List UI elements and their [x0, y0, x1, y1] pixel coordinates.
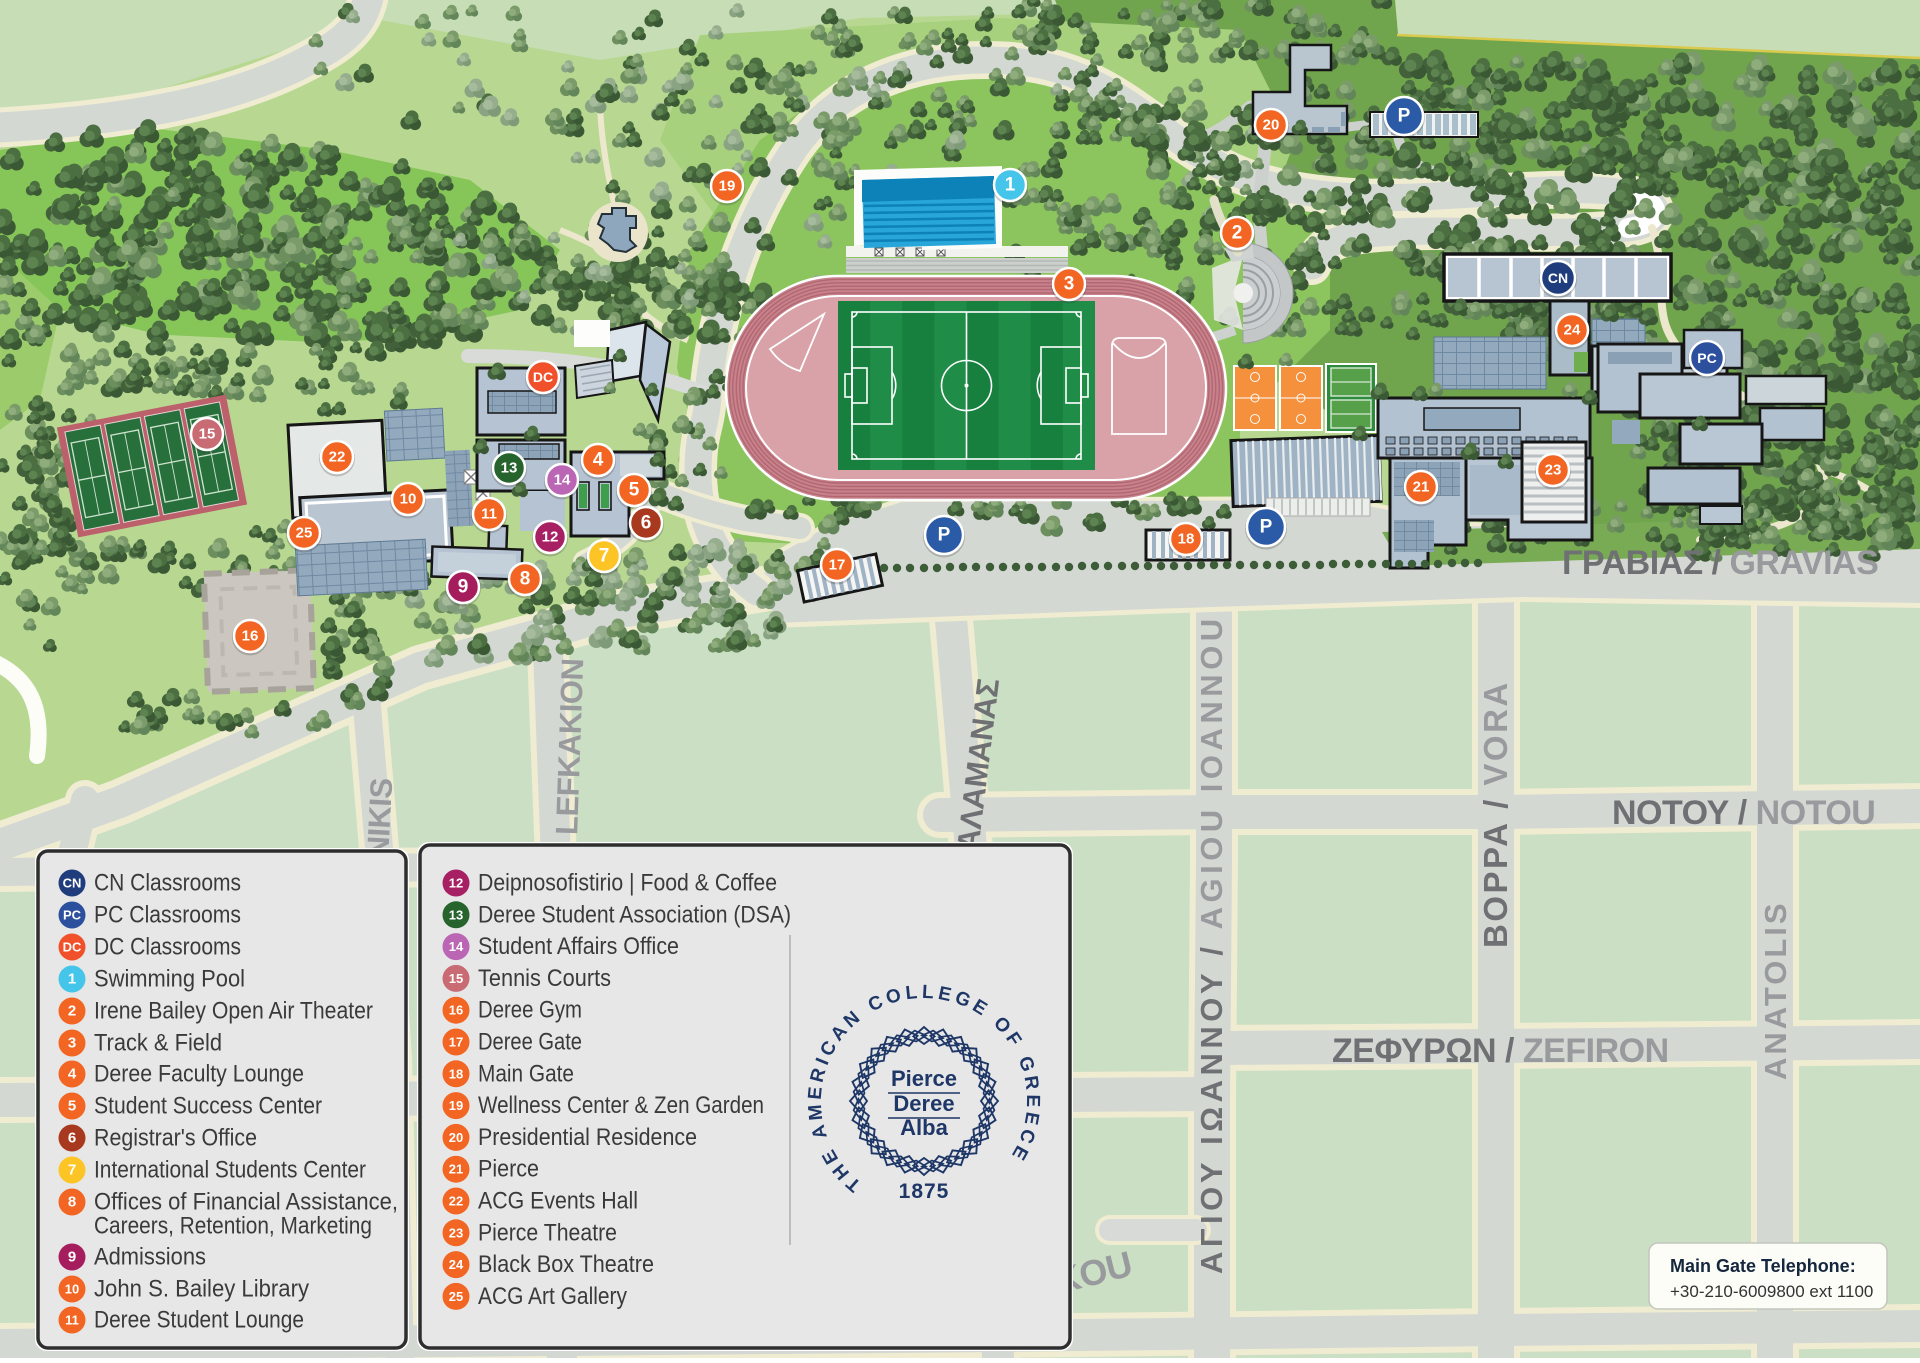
svg-text:2: 2: [1232, 223, 1243, 244]
svg-text:ACG Events Hall: ACG Events Hall: [478, 1188, 638, 1215]
svg-text:ΝΟΤΟΥ / NOTOU: ΝΟΤΟΥ / NOTOU: [1612, 794, 1875, 832]
svg-text:25: 25: [296, 525, 313, 542]
svg-text:18: 18: [1178, 531, 1195, 548]
svg-text:Swimming Pool: Swimming Pool: [94, 966, 245, 993]
svg-text:DC: DC: [533, 369, 553, 385]
svg-text:John S. Bailey Library: John S. Bailey Library: [94, 1276, 309, 1303]
svg-text:13: 13: [449, 907, 463, 922]
svg-text:1: 1: [68, 971, 76, 988]
svg-text:PC: PC: [63, 908, 82, 923]
svg-text:16: 16: [242, 628, 259, 645]
svg-text:ΒΟΡΡΑ / VORA: ΒΟΡΡΑ / VORA: [1477, 680, 1514, 948]
svg-text:Admissions: Admissions: [94, 1244, 206, 1271]
svg-text:CN Classrooms: CN Classrooms: [94, 870, 241, 897]
svg-text:21: 21: [449, 1162, 463, 1177]
svg-text:5: 5: [629, 480, 640, 501]
svg-text:Deree Student Lounge: Deree Student Lounge: [94, 1307, 304, 1334]
svg-text:Irene Bailey Open Air Theater: Irene Bailey Open Air Theater: [94, 998, 373, 1025]
svg-text:15: 15: [449, 971, 463, 986]
svg-text:22: 22: [449, 1194, 463, 1209]
svg-text:1875: 1875: [899, 1180, 950, 1203]
svg-text:Track & Field: Track & Field: [94, 1030, 222, 1057]
svg-text:ΓΡΑΒΙΑΣ / GRAVIAS: ΓΡΑΒΙΑΣ / GRAVIAS: [1562, 544, 1878, 582]
svg-text:ACG Art Gallery: ACG Art Gallery: [478, 1283, 627, 1310]
svg-text:15: 15: [199, 426, 216, 443]
svg-text:24: 24: [449, 1257, 464, 1272]
svg-text:International Students Center: International Students Center: [94, 1157, 366, 1184]
svg-text:5: 5: [68, 1098, 76, 1115]
svg-text:10: 10: [65, 1282, 79, 1297]
svg-text:4: 4: [68, 1066, 77, 1083]
svg-text:14: 14: [449, 939, 464, 954]
svg-text:Pierce Theatre: Pierce Theatre: [478, 1219, 617, 1246]
svg-text:14: 14: [554, 472, 571, 489]
svg-text:25: 25: [449, 1289, 463, 1304]
svg-text:Offices of Financial Assistanc: Offices of Financial Assistance,: [94, 1189, 398, 1216]
svg-text:P: P: [1398, 106, 1411, 127]
svg-text:CN: CN: [63, 876, 82, 891]
svg-text:Pierce: Pierce: [891, 1066, 957, 1091]
svg-text:Presidential Residence: Presidential Residence: [478, 1124, 697, 1151]
svg-text:ΑΓΙΟΥ ΙΩΑΝΝΟΥ / AGIOU IOANNOU: ΑΓΙΟΥ ΙΩΑΝΝΟΥ / AGIOU IOANNOU: [1194, 614, 1229, 1274]
svg-text:DC Classrooms: DC Classrooms: [94, 934, 241, 961]
svg-text:12: 12: [449, 876, 463, 891]
svg-text:Deree: Deree: [893, 1091, 954, 1116]
svg-text:19: 19: [719, 178, 736, 195]
svg-text:23: 23: [1545, 462, 1562, 479]
svg-text:11: 11: [481, 506, 497, 523]
svg-text:20: 20: [449, 1130, 463, 1145]
svg-text:23: 23: [449, 1225, 463, 1240]
svg-text:PC: PC: [1697, 350, 1716, 366]
svg-text:1: 1: [1005, 175, 1016, 196]
svg-text:ANATOLIS: ANATOLIS: [1758, 900, 1793, 1080]
svg-text:18: 18: [449, 1066, 463, 1081]
svg-text:Careers, Retention, Marketing: Careers, Retention, Marketing: [94, 1213, 372, 1240]
svg-text:7: 7: [599, 546, 610, 567]
svg-text:7: 7: [68, 1162, 76, 1179]
svg-text:17: 17: [449, 1035, 463, 1050]
svg-text:11: 11: [65, 1313, 79, 1328]
svg-text:Main Gate: Main Gate: [478, 1060, 574, 1087]
svg-text:4: 4: [593, 450, 604, 471]
svg-text:3: 3: [68, 1035, 76, 1052]
svg-text:6: 6: [68, 1130, 76, 1147]
svg-text:9: 9: [458, 577, 469, 598]
svg-text:6: 6: [641, 513, 652, 534]
svg-text:2: 2: [68, 1003, 76, 1020]
svg-text:12: 12: [542, 529, 559, 546]
svg-text:3: 3: [1064, 274, 1075, 295]
svg-text:DC: DC: [63, 940, 82, 955]
svg-text:CN: CN: [1548, 270, 1568, 286]
svg-text:8: 8: [68, 1194, 76, 1211]
svg-text:Black Box Theatre: Black Box Theatre: [478, 1251, 654, 1278]
svg-text:21: 21: [1413, 479, 1430, 496]
svg-text:20: 20: [1263, 117, 1280, 134]
svg-text:10: 10: [400, 491, 417, 508]
svg-text:24: 24: [1564, 322, 1581, 339]
svg-text:Registrar's Office: Registrar's Office: [94, 1125, 257, 1152]
svg-text:9: 9: [68, 1249, 76, 1266]
svg-text:Pierce: Pierce: [478, 1156, 539, 1183]
svg-text:P: P: [1260, 517, 1273, 538]
svg-text:Tennis Courts: Tennis Courts: [478, 965, 611, 992]
svg-text:Wellness Center & Zen Garden: Wellness Center & Zen Garden: [478, 1092, 764, 1119]
svg-text:P: P: [938, 525, 951, 546]
svg-text:+30-210-6009800 ext 1100: +30-210-6009800 ext 1100: [1670, 1282, 1873, 1301]
svg-text:19: 19: [449, 1098, 463, 1113]
svg-text:Deree Gate: Deree Gate: [478, 1029, 582, 1056]
svg-text:16: 16: [449, 1003, 463, 1018]
svg-text:Deree Faculty Lounge: Deree Faculty Lounge: [94, 1061, 304, 1088]
svg-text:Deree Student Association (DSA: Deree Student Association (DSA): [478, 901, 791, 928]
svg-text:Main Gate Telephone:: Main Gate Telephone:: [1670, 1256, 1856, 1276]
svg-text:13: 13: [501, 460, 518, 477]
svg-text:Student Affairs Office: Student Affairs Office: [478, 933, 679, 960]
svg-text:17: 17: [829, 557, 846, 574]
svg-text:ΖΕΦΥΡΩΝ / ZEFIRON: ΖΕΦΥΡΩΝ / ZEFIRON: [1332, 1032, 1669, 1070]
svg-text:22: 22: [329, 449, 346, 466]
svg-text:Deree Gym: Deree Gym: [478, 997, 582, 1024]
svg-text:Deipnosofistirio | Food & Coff: Deipnosofistirio | Food & Coffee: [478, 870, 777, 897]
svg-text:8: 8: [520, 569, 531, 590]
svg-text:PC Classrooms: PC Classrooms: [94, 902, 241, 929]
svg-text:Student Success Center: Student Success Center: [94, 1093, 322, 1120]
